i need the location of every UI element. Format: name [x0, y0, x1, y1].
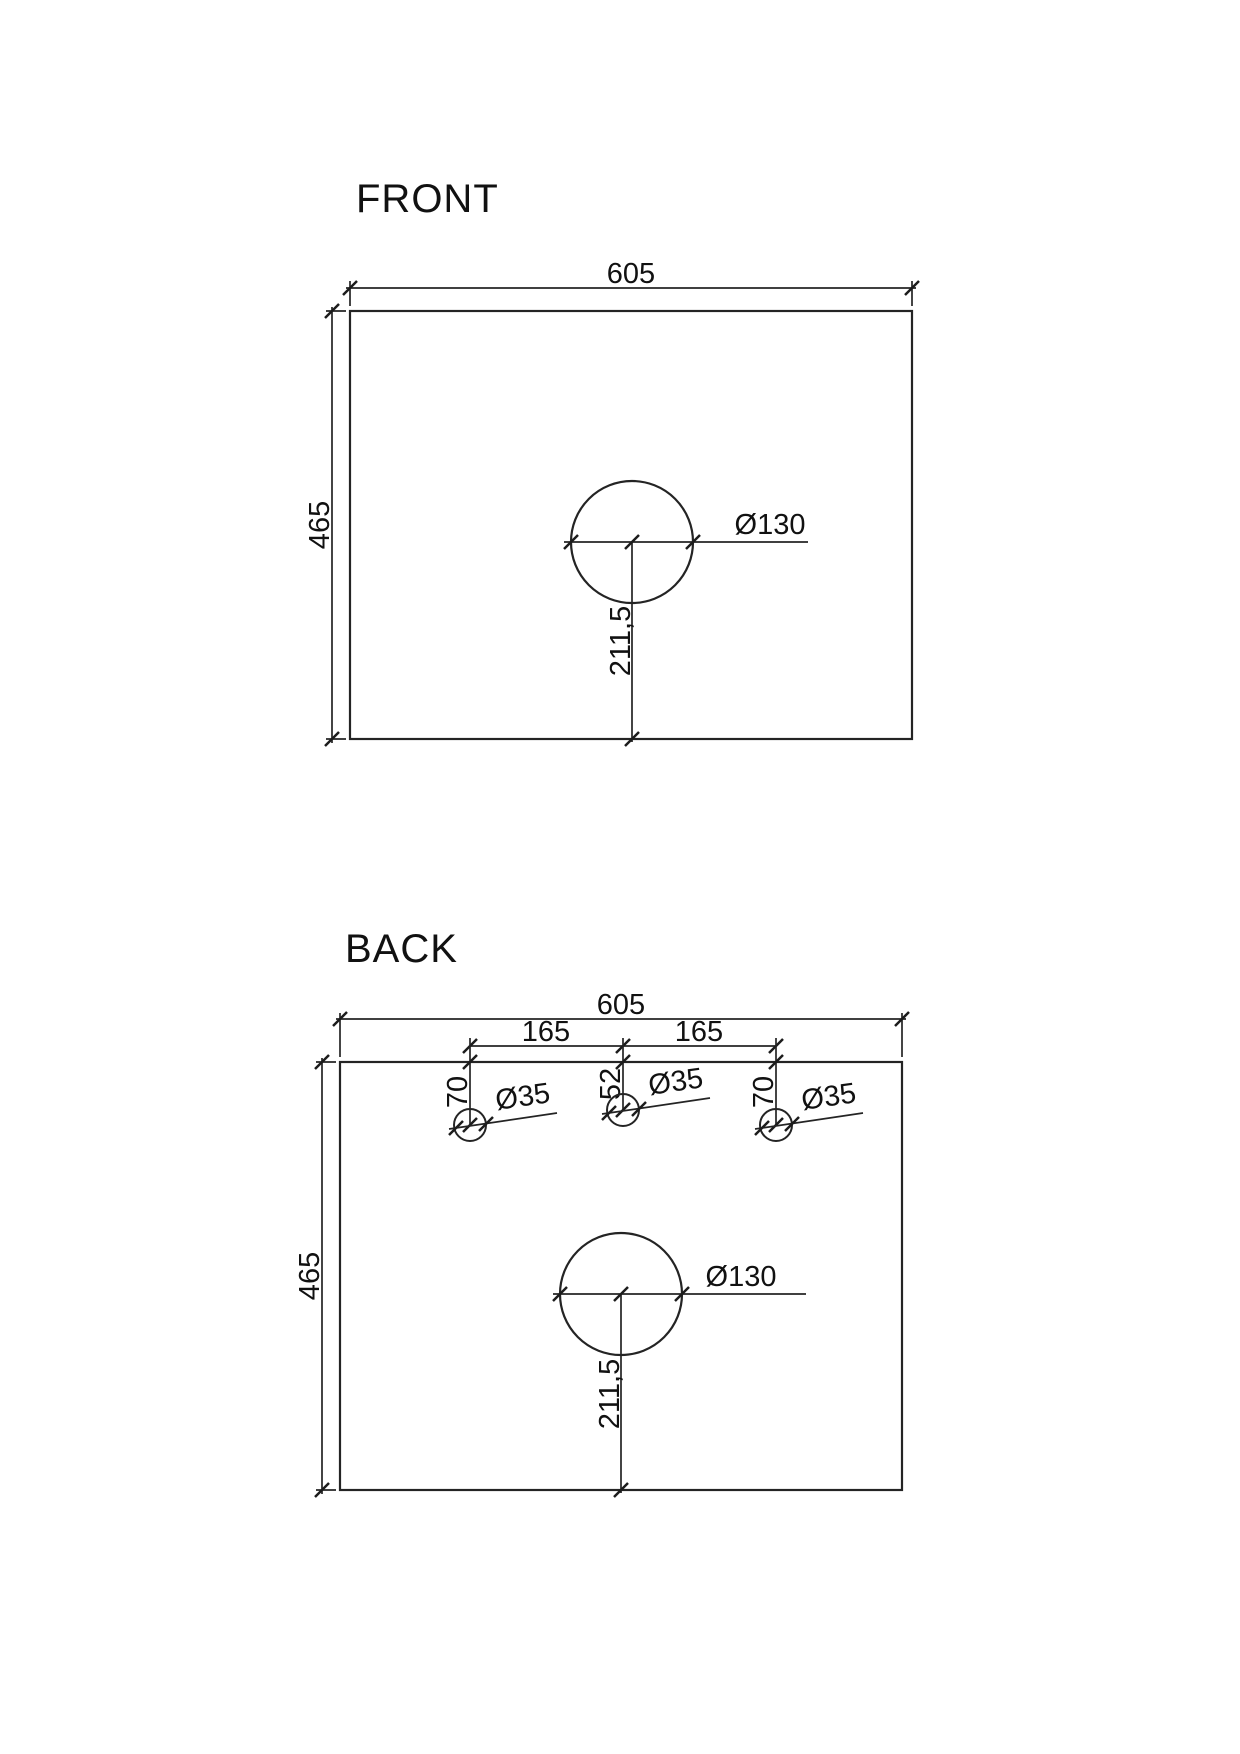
back-view-title: BACK [345, 927, 458, 971]
front-hole-offset-label: 211,5 [605, 606, 637, 676]
back-hole-offset-label: 211,5 [594, 1359, 626, 1429]
front-view-title: FRONT [356, 177, 499, 221]
front-height-dimension: 465 [304, 304, 346, 746]
back-small-hole-left-label: Ø35 [493, 1077, 552, 1116]
back-spacing-left-label: 165 [522, 1016, 570, 1048]
front-hole-diameter-label: Ø130 [735, 509, 806, 541]
front-width-dimension: 605 [343, 258, 919, 306]
back-depth-left-label: 70 [442, 1076, 474, 1108]
back-depth-right-label: 70 [748, 1076, 780, 1108]
front-hole-offset-dimension: 211,5 [605, 535, 639, 746]
back-height-label: 465 [294, 1252, 326, 1300]
back-hole-offset-dimension: 211,5 [594, 1287, 628, 1497]
back-spacing-right-label: 165 [675, 1016, 723, 1048]
back-small-hole-center-label: Ø35 [646, 1062, 705, 1101]
back-height-dimension: 465 [294, 1055, 336, 1497]
front-height-label: 465 [304, 501, 336, 549]
back-hole-diameter-label: Ø130 [706, 1261, 777, 1293]
front-view: FRONT 605 465 Ø130 [304, 177, 919, 746]
back-width-label: 605 [597, 989, 645, 1021]
technical-drawing: FRONT 605 465 Ø130 [0, 0, 1240, 1754]
back-view: BACK 605 165 165 70 [294, 927, 909, 1497]
back-small-hole-right-label: Ø35 [799, 1077, 858, 1116]
front-width-label: 605 [607, 258, 655, 290]
back-depth-center-label: 52 [595, 1068, 627, 1100]
